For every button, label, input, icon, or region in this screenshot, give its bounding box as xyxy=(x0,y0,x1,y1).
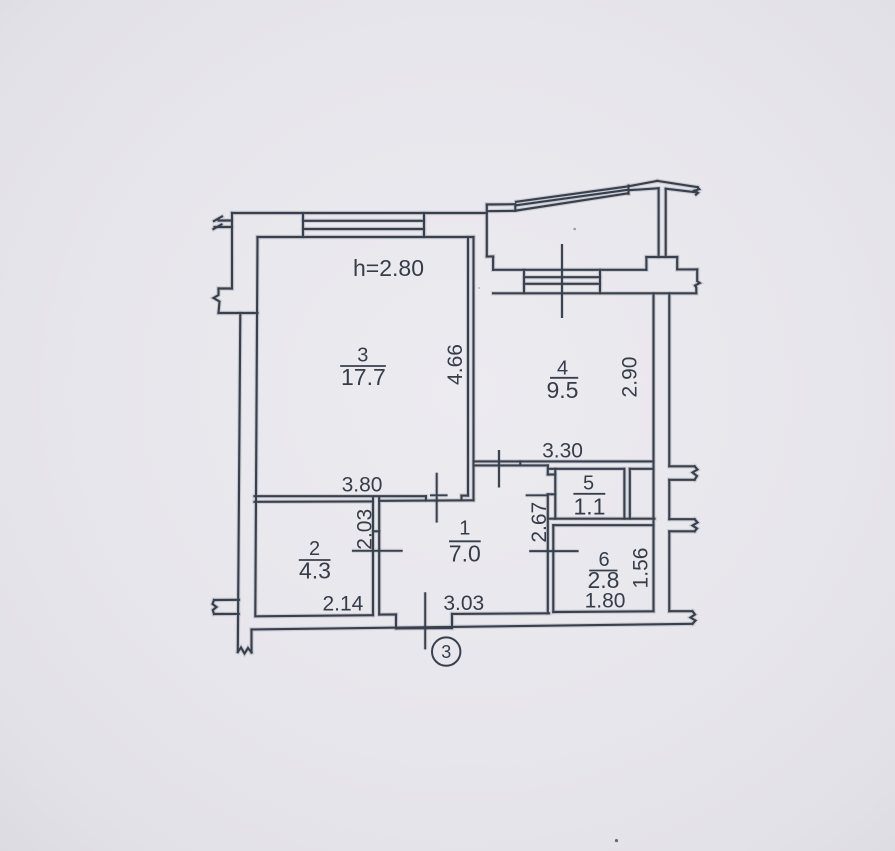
svg-text:1: 1 xyxy=(459,518,470,540)
svg-text:2.14: 2.14 xyxy=(322,593,363,616)
svg-text:1.56: 1.56 xyxy=(629,548,652,589)
svg-text:3.80: 3.80 xyxy=(342,474,383,497)
svg-text:3.30: 3.30 xyxy=(542,440,583,463)
svg-text:3: 3 xyxy=(441,642,451,662)
svg-text:h=2.80: h=2.80 xyxy=(353,255,424,281)
svg-text:9.5: 9.5 xyxy=(547,377,579,403)
svg-text:1.80: 1.80 xyxy=(585,590,626,613)
svg-text:2.03: 2.03 xyxy=(353,509,376,550)
svg-text:3.03: 3.03 xyxy=(443,592,484,615)
svg-text:2.90: 2.90 xyxy=(619,357,642,398)
svg-text:4.3: 4.3 xyxy=(299,558,331,584)
svg-text:17.7: 17.7 xyxy=(341,364,386,390)
svg-text:1.1: 1.1 xyxy=(574,494,606,520)
svg-text:4.66: 4.66 xyxy=(444,344,467,385)
svg-text:2.67: 2.67 xyxy=(528,502,551,543)
svg-text:5: 5 xyxy=(583,473,594,495)
svg-text:7.0: 7.0 xyxy=(449,541,481,567)
